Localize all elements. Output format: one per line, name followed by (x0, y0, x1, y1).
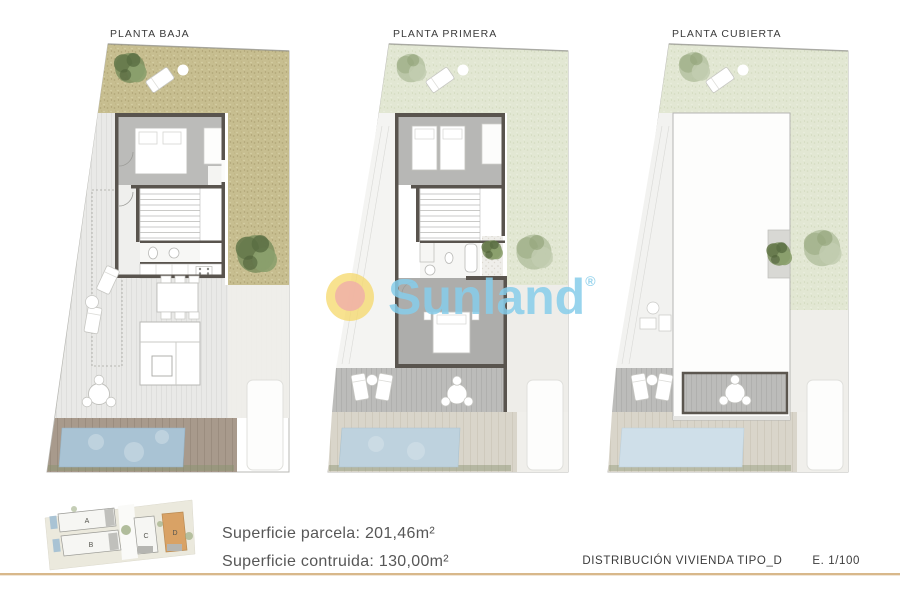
plan-sheet: PLANTA BAJA PLANTA PRIMERA PLANTA CUBIER… (0, 0, 900, 600)
sheet-title: DISTRIBUCIÓN VIVIENDA TIPO_D (582, 555, 782, 567)
furniture (659, 315, 671, 331)
window (222, 160, 226, 182)
bathtub (465, 244, 477, 272)
staircase (140, 188, 200, 242)
parking-space (807, 380, 843, 470)
keyplan-tree-icon (121, 525, 131, 535)
side-table (647, 375, 658, 386)
planta-primera-drawing (316, 36, 576, 476)
plot-c-label: C (143, 533, 148, 540)
surface-info: Superficie parcela: 201,46m² Superficie … (222, 520, 449, 576)
nightstand (472, 312, 479, 320)
toilet (149, 247, 158, 259)
plot-b-label: B (89, 542, 94, 549)
dining-set (157, 276, 199, 319)
keyplan-pool (52, 539, 60, 553)
side-table (647, 302, 659, 314)
keyplan-garage (167, 544, 182, 551)
planta-baja-drawing (36, 36, 296, 476)
sink (425, 265, 435, 275)
staircase (420, 188, 480, 242)
registered-mark: ® (585, 273, 595, 289)
swimming-pool (339, 428, 460, 467)
toilet (445, 253, 453, 264)
keyplan-tree-icon (157, 521, 163, 527)
footer-divider-line (0, 573, 900, 575)
closet (204, 128, 223, 164)
nightstand (424, 312, 431, 320)
swimming-pool (619, 428, 744, 467)
stove (196, 267, 212, 276)
closet (482, 124, 503, 164)
surface-built: Superficie contruida: 130,00m² (222, 548, 449, 576)
keyplan-pool (49, 516, 57, 530)
keyplan-garage (138, 546, 153, 553)
side-table (367, 375, 378, 386)
parking-space (527, 380, 563, 470)
planta-cubierta-drawing (596, 36, 856, 476)
sheet-scale: E. 1/100 (812, 555, 860, 567)
sink (169, 248, 179, 258)
surface-parcel: Superficie parcela: 201,46m² (222, 520, 449, 548)
keyplan-garage (104, 509, 115, 527)
side-table (86, 296, 99, 309)
garden-ball (458, 65, 469, 76)
garden-ball (178, 65, 189, 76)
sofa (140, 322, 200, 385)
keyplan-tree-icon (185, 532, 193, 540)
keyplan-tree-icon (71, 506, 77, 512)
keyplan-garage (108, 533, 119, 551)
lower-floor-see-through (336, 113, 396, 368)
furniture (640, 318, 656, 329)
garden-ball (738, 65, 749, 76)
roof-edge-shadow (673, 416, 790, 420)
parking-space (247, 380, 283, 470)
site-key-plan: A B C D (42, 496, 197, 576)
plot-a-label: A (85, 518, 90, 525)
plot-d-label: D (172, 530, 177, 537)
footer: DISTRIBUCIÓN VIVIENDA TIPO_D E. 1/100 (582, 555, 860, 567)
